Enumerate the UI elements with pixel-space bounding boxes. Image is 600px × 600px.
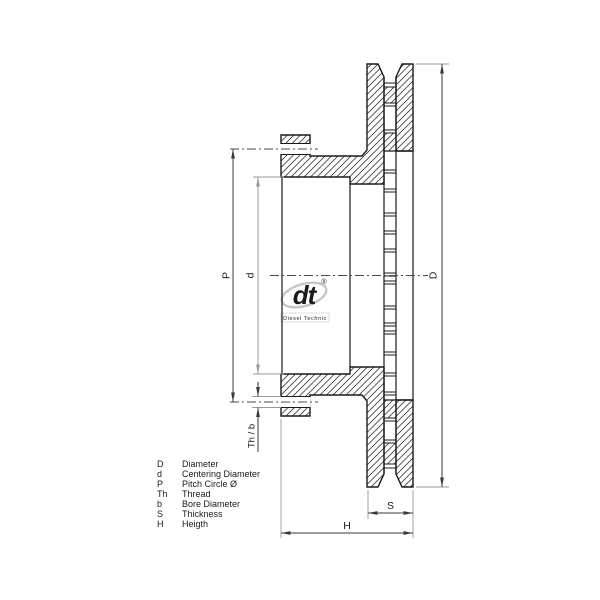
arrowhead	[404, 531, 414, 535]
legend-row: DDiameter	[157, 459, 260, 469]
legend-description: Thread	[182, 489, 260, 499]
arrowhead	[256, 365, 260, 375]
vane-section-hatch	[384, 133, 396, 151]
legend-symbol: b	[157, 499, 182, 509]
legend-description: Bore Diameter	[182, 499, 260, 509]
hub-flange-top-section	[281, 64, 384, 184]
legend-row: HHeigth	[157, 519, 260, 529]
legend-symbol: S	[157, 509, 182, 519]
dim-label-P: P	[221, 272, 233, 279]
arrowhead	[281, 531, 291, 535]
legend-symbol: D	[157, 459, 182, 469]
arrowhead	[368, 511, 378, 515]
arrowhead	[231, 393, 235, 403]
arrowhead	[256, 177, 260, 187]
dim-label-Th-b: Th / b	[247, 424, 258, 448]
dim-label-S: S	[387, 500, 394, 512]
outboard-plate-top-section	[396, 64, 413, 151]
dt-watermark-subtext: Diesel Technic	[283, 316, 327, 322]
arrowhead	[404, 511, 414, 515]
vane-section-hatch	[384, 400, 396, 418]
arrowhead	[440, 478, 444, 488]
legend-description: Pitch Circle Ø	[182, 479, 260, 489]
arrowhead	[231, 149, 235, 159]
arrowhead	[440, 64, 444, 74]
arrowhead	[256, 387, 260, 397]
legend-row: bBore Diameter	[157, 499, 260, 509]
legend-description: Diameter	[182, 459, 260, 469]
legend-symbol: P	[157, 479, 182, 489]
dt-watermark-logo: dt	[293, 280, 318, 310]
outboard-plate-bottom-section	[396, 400, 413, 487]
hub-flange-bottom-section	[281, 367, 384, 487]
centerlines	[230, 149, 428, 402]
legend-symbol: H	[157, 519, 182, 529]
dt-watermark-registered: ®	[321, 278, 327, 286]
legend-row: dCentering Diameter	[157, 469, 260, 479]
legend-symbol: Th	[157, 489, 182, 499]
legend-symbol: d	[157, 469, 182, 479]
dim-label-H: H	[343, 520, 351, 532]
legend-description: Centering Diameter	[182, 469, 260, 479]
dim-label-d: d	[245, 272, 257, 278]
legend-description: Thickness	[182, 509, 260, 519]
dt-watermark: dt ® Diesel Technic	[279, 278, 329, 322]
legend-row: SThickness	[157, 509, 260, 519]
legend-description: Heigth	[182, 519, 260, 529]
vane-section-hatch	[384, 87, 396, 103]
arrowhead	[256, 408, 260, 418]
legend-row: ThThread	[157, 489, 260, 499]
legend-row: PPitch Circle Ø	[157, 479, 260, 489]
dim-label-D: D	[428, 271, 440, 279]
technical-drawing-page: dt ® Diesel Technic	[0, 0, 600, 600]
vane-section-hatch	[384, 443, 396, 464]
legend: DDiameterdCentering DiameterPPitch Circl…	[157, 459, 260, 529]
brake-disc-cross-section-drawing: dt ® Diesel Technic	[0, 0, 600, 600]
